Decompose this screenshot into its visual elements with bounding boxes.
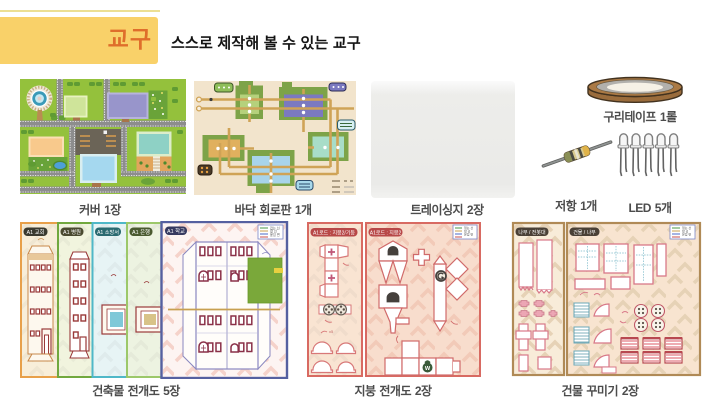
- svg-text:A1 학교: A1 학교: [167, 227, 185, 235]
- svg-text:A1 소방서: A1 소방서: [97, 228, 119, 236]
- svg-text:A1 은행: A1 은행: [132, 229, 150, 236]
- svg-text:A1로드 : 지붕2: A1로드 : 지붕2: [370, 229, 402, 236]
- svg-text:W: W: [425, 366, 431, 372]
- svg-text:A1 교회: A1 교회: [26, 228, 44, 236]
- svg-text:나무 / 전봇대: 나무 / 전봇대: [518, 229, 546, 236]
- svg-text:건물 / 나무: 건물 / 나무: [573, 229, 596, 236]
- svg-text:A1 병원: A1 병원: [63, 228, 81, 236]
- svg-text:붙임 면: 붙임 면: [464, 232, 473, 237]
- svg-text:붙임 면: 붙임 면: [682, 232, 691, 237]
- svg-text:A1로드 : 지붕2/기둥: A1로드 : 지붕2/기둥: [313, 229, 355, 236]
- svg-text:붙임 면: 붙임 면: [270, 232, 280, 237]
